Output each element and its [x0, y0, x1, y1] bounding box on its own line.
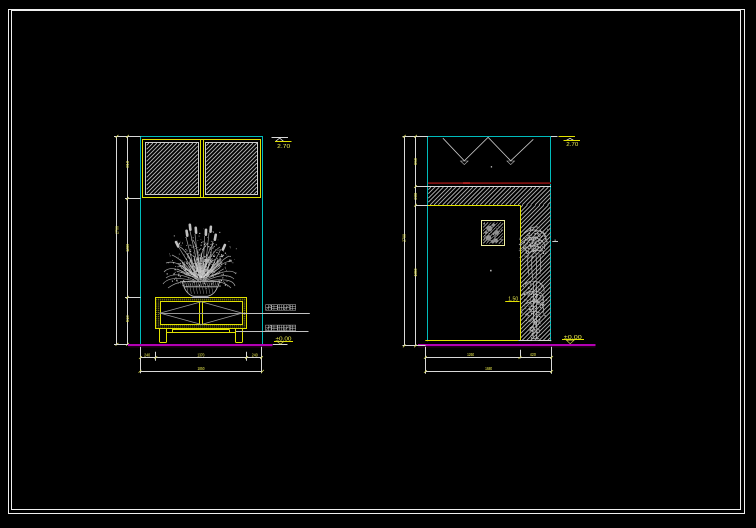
svg-text:1850: 1850	[198, 366, 205, 371]
svg-text:2700: 2700	[114, 225, 119, 234]
svg-text:1680: 1680	[485, 366, 492, 371]
svg-text:650: 650	[413, 157, 418, 165]
svg-text:810: 810	[125, 160, 130, 168]
svg-text:240: 240	[144, 352, 151, 357]
svg-text:240: 240	[252, 352, 259, 357]
svg-text:1280: 1280	[125, 243, 130, 252]
svg-text:1260: 1260	[467, 352, 474, 357]
svg-text:2700: 2700	[402, 233, 407, 242]
svg-text:2.70: 2.70	[277, 144, 290, 150]
svg-text:230: 230	[413, 192, 418, 200]
svg-text:1850: 1850	[413, 268, 418, 277]
svg-text:1370: 1370	[197, 352, 204, 357]
svg-text:610: 610	[125, 315, 130, 323]
svg-text:2.70: 2.70	[566, 142, 578, 148]
svg-text:420: 420	[530, 352, 537, 357]
